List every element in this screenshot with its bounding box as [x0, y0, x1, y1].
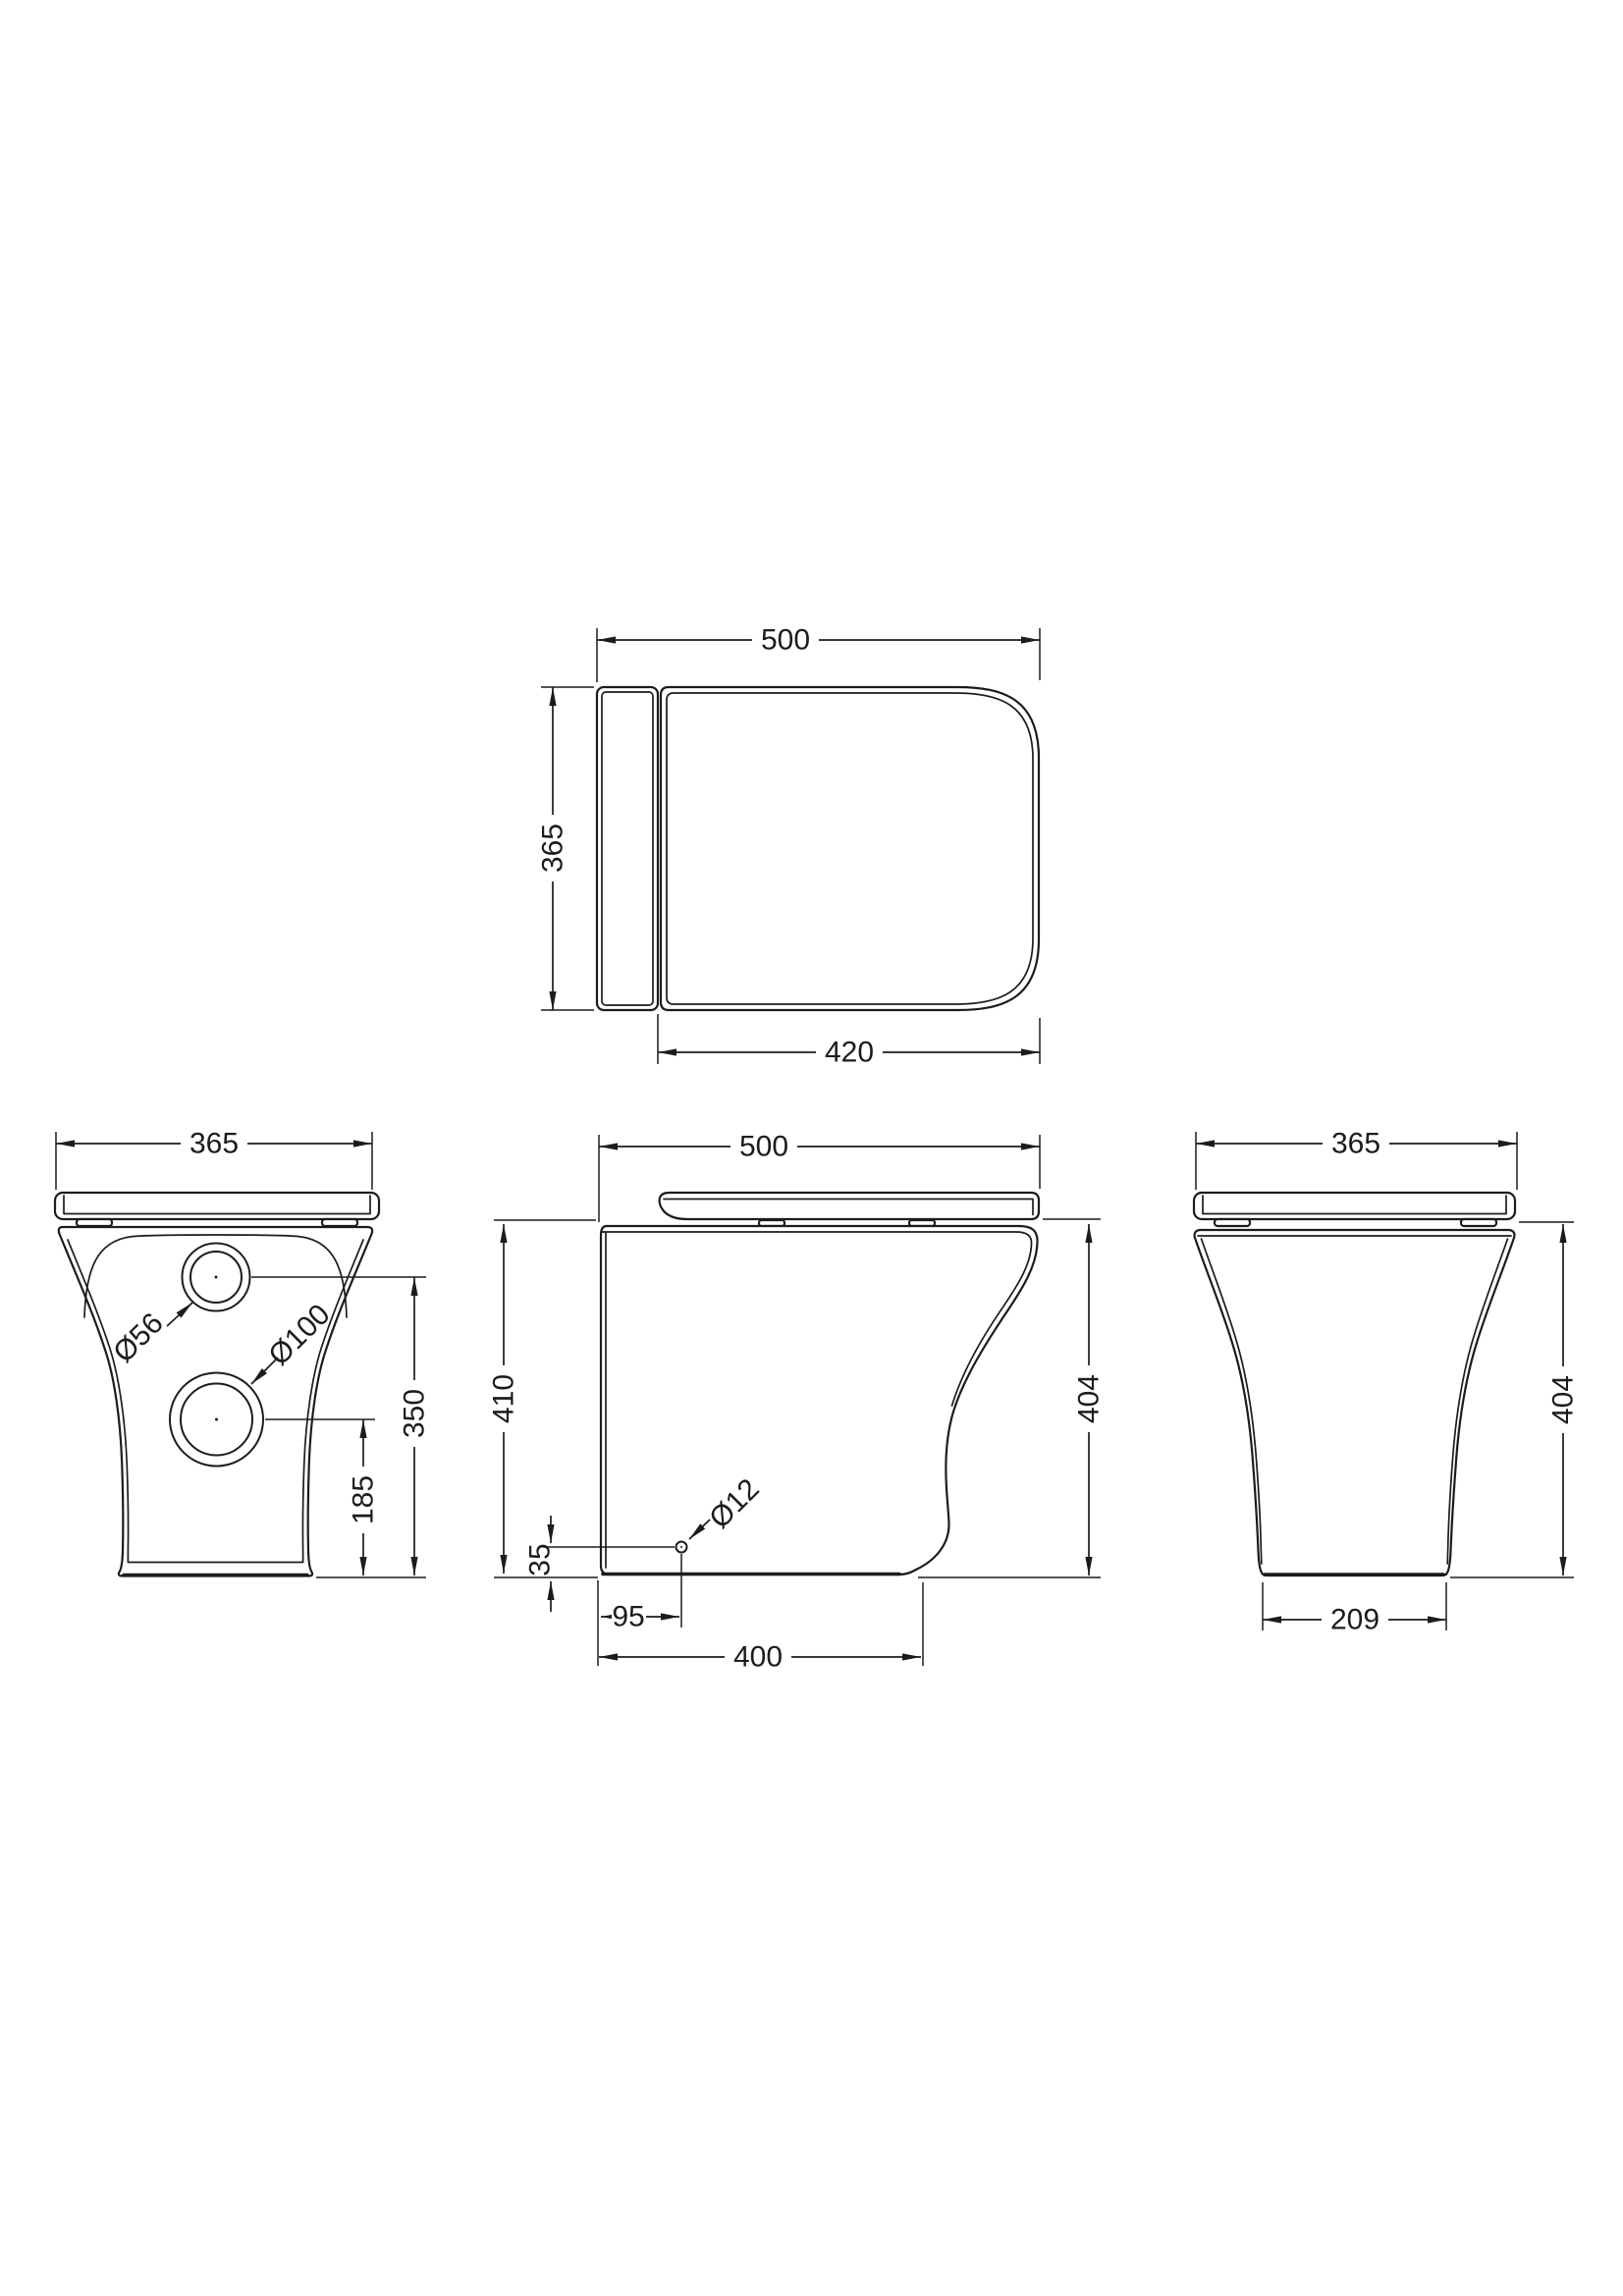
dim-side-fixing-setback-label: 95 [612, 1601, 644, 1633]
side-seat-outline [660, 1193, 1039, 1219]
dim-side-depth-label: 500 [739, 1131, 788, 1163]
plan-hinge-plate-outline [597, 687, 658, 1010]
dim-plan-width-label: 365 [537, 824, 569, 873]
rear-seat-outline [55, 1193, 379, 1219]
dim-side-total-height-label: 410 [488, 1374, 520, 1423]
dim-front-base-width-label: 209 [1330, 1604, 1380, 1636]
front-hinge-tab-right [1461, 1219, 1496, 1226]
dim-front-height-label: 404 [1547, 1375, 1580, 1424]
plan-lid-outline [661, 687, 1039, 1010]
dim-side-total-height: 410 [488, 1220, 599, 1577]
rear-outlet-center-dot [215, 1418, 218, 1421]
dim-rear-width: 365 [56, 1128, 372, 1191]
dim-rear-outlet-height-label: 185 [348, 1475, 380, 1524]
dim-plan-width: 365 [537, 687, 595, 1010]
front-seat-outline [1194, 1193, 1515, 1219]
dim-plan-depth: 500 [597, 624, 1040, 683]
front-pan-outline [1195, 1230, 1515, 1575]
dim-front-base-width: 209 [1263, 1582, 1446, 1636]
rear-hinge-tab-right [322, 1219, 357, 1226]
rear-hinge-tab-left [77, 1219, 112, 1226]
dim-plan-lid-length: 420 [658, 1014, 1040, 1069]
dim-side-fixing-height-label: 35 [524, 1543, 557, 1575]
drawing-page: 500 365 420 [0, 0, 1623, 2296]
dim-plan-depth-label: 500 [761, 624, 810, 657]
technical-drawing: 500 365 420 [0, 0, 1623, 2296]
plan-view: 500 365 420 [537, 624, 1041, 1070]
dim-side-base-depth-label: 400 [733, 1641, 783, 1674]
side-fixing-hole-dot [680, 1546, 682, 1548]
dim-rear-width-label: 365 [189, 1128, 239, 1160]
front-hinge-tab-left [1215, 1219, 1250, 1226]
dim-front-width-label: 365 [1331, 1128, 1380, 1160]
dim-side-base-depth: 400 [599, 1582, 923, 1674]
front-view: 365 404 209 [1194, 1128, 1580, 1637]
side-pan-outline [601, 1226, 1038, 1575]
rear-view: 365 350 185 Ø56 Ø100 [55, 1128, 431, 1578]
side-view: 500 410 404 35 [488, 1131, 1107, 1675]
dim-plan-lid-length-label: 420 [825, 1037, 874, 1069]
dim-side-pan-height-label: 404 [1073, 1374, 1106, 1423]
dim-rear-inlet-height-label: 350 [399, 1389, 431, 1438]
dim-front-width: 365 [1196, 1128, 1517, 1191]
rear-inlet-center-dot [215, 1276, 218, 1279]
